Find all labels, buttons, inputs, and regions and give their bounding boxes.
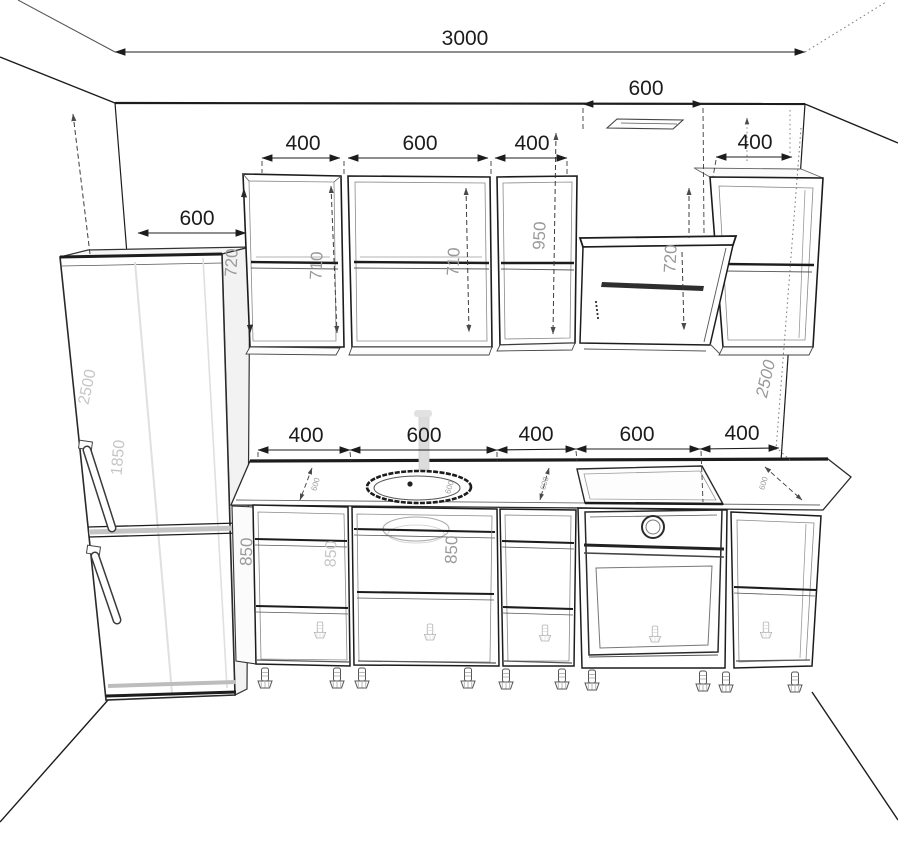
cabinet-outline bbox=[497, 176, 577, 345]
label-hood-gap: 600 bbox=[628, 77, 663, 100]
label-upper-right: 400 bbox=[737, 131, 772, 154]
cabinet-bottom-face bbox=[349, 347, 492, 355]
dim-line bbox=[73, 114, 90, 254]
dimension-corner-offset: 600 bbox=[138, 207, 246, 233]
ceiling-vent bbox=[607, 119, 683, 129]
label-base-height-3: 850 bbox=[442, 535, 462, 564]
wall-cabinet-3 bbox=[497, 176, 577, 351]
label-base-height-1: 850 bbox=[237, 537, 257, 566]
wall-cabinets-row: 720 710 710 950 bbox=[221, 133, 577, 355]
foot bbox=[330, 668, 344, 688]
foot bbox=[555, 669, 569, 689]
ceiling-extension-line bbox=[18, 0, 115, 52]
dim-line-5 bbox=[700, 448, 779, 449]
cooktop-surface bbox=[577, 466, 723, 504]
cabinet-side-face bbox=[232, 506, 256, 664]
cabinet-outline bbox=[253, 505, 350, 666]
sink-drain bbox=[407, 481, 412, 486]
cabinet-bottom-face bbox=[719, 347, 813, 355]
base-cabinets-row: 850 850 850 bbox=[232, 505, 821, 668]
foot bbox=[788, 672, 802, 692]
left-floor-edge bbox=[0, 700, 108, 822]
fridge-front-face bbox=[60, 254, 235, 700]
label-710-mid: 710 bbox=[443, 247, 463, 276]
cooktop-front-edge bbox=[585, 503, 723, 504]
base-cabinet-5 bbox=[731, 512, 821, 668]
fridge: 2500 1850 bbox=[60, 247, 250, 700]
base-cabinet-2-sink bbox=[352, 507, 499, 666]
hood-front-panel bbox=[580, 245, 733, 345]
base-cabinet-3 bbox=[500, 509, 576, 666]
oven-knob bbox=[642, 516, 664, 538]
dimension-room-width: 3000 bbox=[115, 27, 805, 52]
hood-bottom-inner-line bbox=[584, 349, 706, 351]
sink: 600 bbox=[367, 471, 471, 503]
dim-line-3 bbox=[497, 449, 576, 450]
label-corner-offset: 600 bbox=[179, 207, 214, 230]
foot bbox=[499, 669, 513, 689]
right-ceiling-dotted-extension bbox=[805, 2, 886, 52]
dimension-room-height-left bbox=[73, 114, 90, 254]
label-710-left: 710 bbox=[306, 251, 326, 280]
dimension-upper-right: 400 bbox=[713, 110, 792, 177]
label-base-4: 600 bbox=[619, 423, 654, 446]
label-hood-720: 720 bbox=[660, 244, 680, 273]
shelf-front-edge bbox=[354, 262, 489, 263]
label-upper-3: 400 bbox=[514, 132, 549, 155]
faucet-spout bbox=[414, 410, 432, 417]
wall-cabinet-2 bbox=[348, 176, 492, 355]
cabinet-outline bbox=[243, 174, 344, 347]
foot bbox=[355, 668, 369, 688]
dimension-upper-row: 400 600 400 bbox=[262, 132, 567, 176]
shelf-front-edge bbox=[725, 264, 814, 265]
label-base-height-2: 850 bbox=[323, 540, 341, 567]
label-base-3: 400 bbox=[518, 423, 553, 446]
base-cabinet-1 bbox=[232, 505, 350, 666]
right-floor-edge bbox=[812, 692, 898, 820]
wall-cabinet-1 bbox=[243, 174, 344, 355]
right-wall-ceiling-edge bbox=[805, 104, 898, 143]
foot bbox=[258, 668, 272, 688]
cooktop bbox=[577, 466, 723, 504]
hood-chimney-line bbox=[710, 344, 720, 354]
label-950: 950 bbox=[529, 221, 549, 250]
left-wall-ceiling-edge bbox=[0, 57, 115, 103]
drawing-svg: 2500 1850 bbox=[0, 0, 898, 842]
foot bbox=[461, 668, 475, 688]
label-room-height-right: 2500 bbox=[752, 358, 779, 401]
label-room-width: 3000 bbox=[442, 27, 489, 50]
cabinet-outline bbox=[500, 509, 576, 666]
foot bbox=[585, 670, 599, 690]
label-fridge-height: 1850 bbox=[108, 439, 128, 476]
label-upper-2: 600 bbox=[402, 132, 437, 155]
cabinet-bottom-face bbox=[246, 347, 340, 355]
label-720: 720 bbox=[221, 248, 241, 277]
base-cabinet-4-oven bbox=[578, 508, 727, 668]
foot bbox=[696, 671, 710, 691]
label-base-1: 400 bbox=[288, 424, 323, 447]
countertop-wall-junction bbox=[250, 459, 828, 461]
label-base-2: 600 bbox=[406, 424, 441, 447]
foot bbox=[719, 672, 733, 692]
kitchen-elevation-drawing: 2500 1850 bbox=[0, 0, 898, 842]
label-upper-1: 400 bbox=[285, 132, 320, 155]
label-base-5: 400 bbox=[724, 422, 759, 445]
